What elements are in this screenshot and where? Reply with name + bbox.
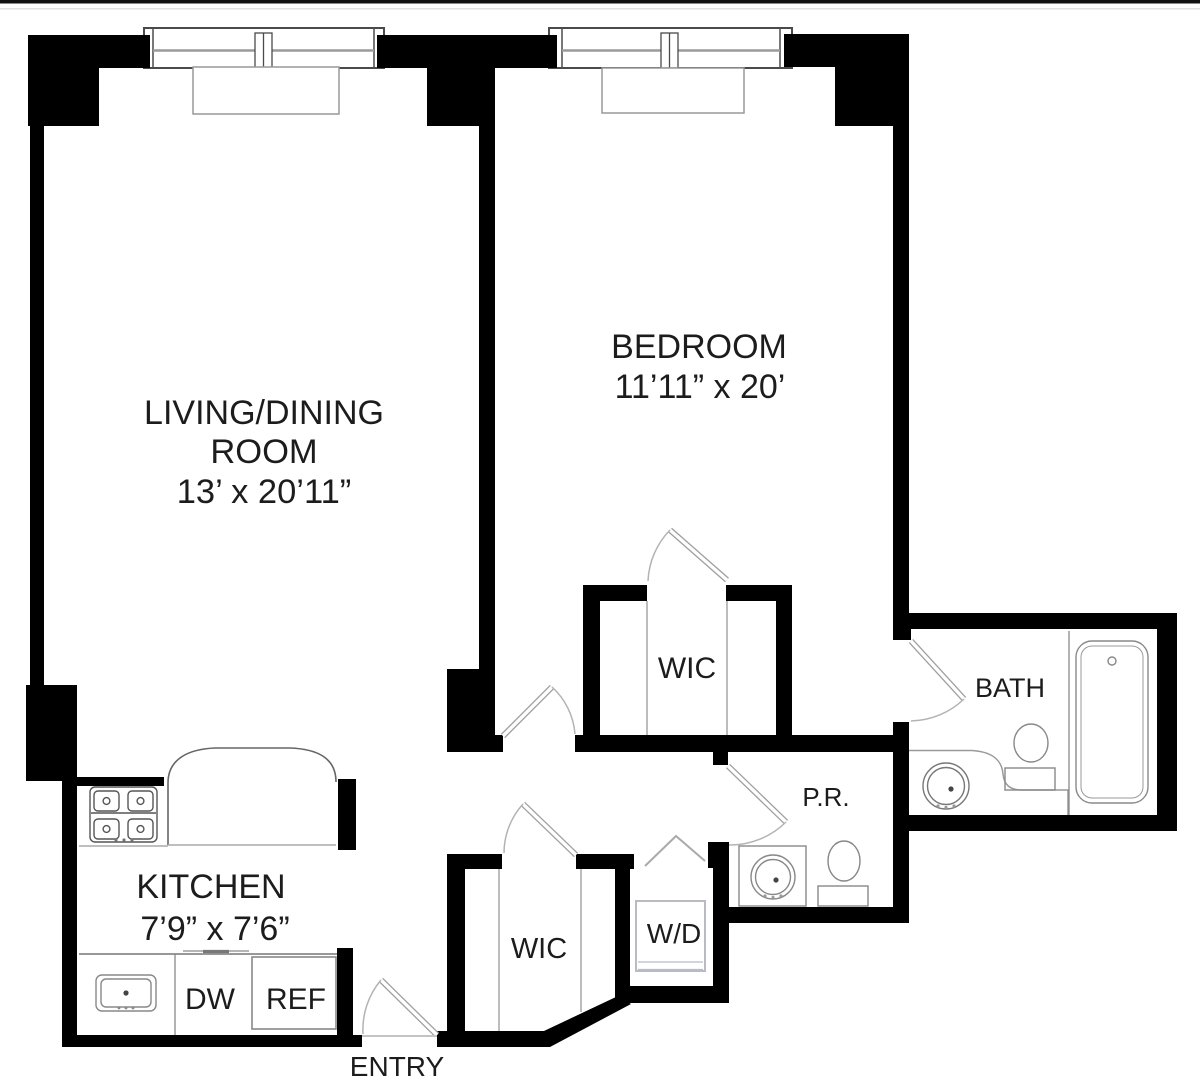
svg-text:WIC: WIC <box>511 933 567 965</box>
svg-text:ROOM: ROOM <box>210 433 317 471</box>
svg-text:W/D: W/D <box>647 918 701 949</box>
svg-text:13’ x 20’11”: 13’ x 20’11” <box>177 473 352 511</box>
svg-text:BATH: BATH <box>975 673 1045 703</box>
svg-text:KITCHEN: KITCHEN <box>136 868 285 906</box>
svg-text:11’11” x 20’: 11’11” x 20’ <box>615 368 786 406</box>
svg-text:ENTRY: ENTRY <box>350 1051 445 1082</box>
svg-text:LIVING/DINING: LIVING/DINING <box>144 394 384 432</box>
svg-text:WIC: WIC <box>658 652 716 685</box>
svg-text:7’9” x 7’6”: 7’9” x 7’6” <box>140 910 289 948</box>
svg-text:DW: DW <box>185 983 236 1016</box>
svg-text:P.R.: P.R. <box>802 782 849 812</box>
svg-text:REF: REF <box>266 983 326 1016</box>
svg-text:BEDROOM: BEDROOM <box>611 328 787 366</box>
